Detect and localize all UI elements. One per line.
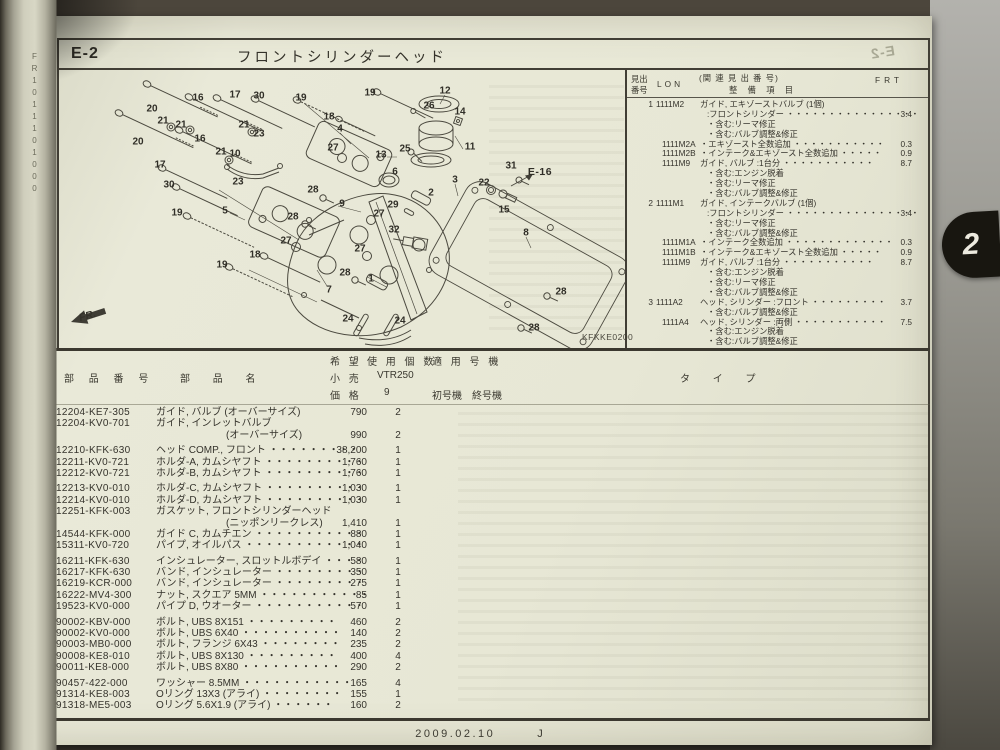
footer-mark: J: [537, 728, 543, 740]
callout-25: 25: [399, 144, 410, 155]
svc-col-item: 整 備 項 目: [729, 84, 797, 96]
page-title: フロントシリンダーヘッド: [59, 46, 625, 67]
callout-22: 22: [478, 178, 489, 189]
callout-5: 5: [222, 206, 228, 217]
callout-1: 1: [368, 274, 374, 285]
callout-18: 18: [323, 112, 334, 123]
callout-10: 10: [229, 149, 240, 160]
svc-col-lon: LON: [657, 79, 683, 89]
callout-2: 2: [428, 188, 434, 199]
main-frame: E-2 フロントシリンダーヘッド: [57, 38, 930, 350]
callout-27: 27: [373, 209, 384, 220]
parts-rows: 112204-KE7-305ガイド, バルブ (オーバーサイズ)79022122…: [28, 407, 930, 712]
photo-of-parts-catalog: E-2 E-2 フロントシリンダーヘッド: [0, 0, 1000, 750]
parts-row: 2291314-KE8-003Oリング 13X3 (アライ) ・・・・・・・・1…: [28, 689, 930, 700]
callout-20: 20: [146, 104, 157, 115]
callout-21: 21: [215, 147, 226, 158]
parts-row: 1015311-KV0-720パイプ, オイルパス ・・・・・・・・・・・・1,…: [28, 540, 930, 551]
callout-E-16: E-16: [528, 166, 552, 178]
callout-7: 7: [326, 285, 332, 296]
callout-32: 32: [388, 225, 399, 236]
col-part-number: 部 品 番 号: [64, 370, 154, 385]
callout-30: 30: [163, 180, 174, 191]
service-panel: 見出 番号 LON (関 連 見 出 番 号) 整 備 項 目 FRT 1111…: [625, 70, 928, 348]
parts-row: 512212-KV0-721ホルダ-B, カムシヤフト ・・・・・・・・・・1,…: [28, 468, 930, 479]
page-header: E-2 フロントシリンダーヘッド: [59, 40, 928, 70]
parts-row: 1990008-KE8-010ボルト, UBS 8X130 ・・・・・・・・・4…: [28, 651, 930, 662]
parts-row: 612213-KV0-010ホルダ-C, カムシヤフト ・・・・・・・・・・1,…: [28, 483, 930, 494]
callout-27: 27: [327, 143, 338, 154]
callout-12: 12: [439, 86, 450, 97]
callout-28: 28: [528, 323, 539, 334]
col-quantity: 使 用 個 数: [367, 353, 436, 368]
parts-row: 1790002-KV0-000ボルト, UBS 6X40 ・・・・・・・・・・1…: [28, 628, 930, 639]
callout-19: 19: [364, 88, 375, 99]
callout-21: 21: [157, 116, 168, 127]
callout-14: 14: [454, 107, 465, 118]
parts-row: 914544-KFK-000ガイド C, カムチエン ・・・・・・・・・・・88…: [28, 529, 930, 540]
callout-19: 19: [216, 260, 227, 271]
footer-date: 2009.02.10: [415, 728, 495, 740]
col-part-name: 部 品 名: [180, 370, 266, 385]
service-row: :フロントシリンダー ・・・・・・・・・・・・・・・・3.4: [627, 110, 928, 120]
callout-21: 21: [175, 120, 186, 131]
book-spine: FR1011101000: [0, 0, 57, 750]
callout-23: 23: [253, 129, 264, 140]
col-first-serial: 初号機: [432, 387, 462, 402]
parts-row: 2090011-KE8-000ボルト, UBS 8X80 ・・・・・・・・・・2…: [28, 662, 930, 673]
parts-row: 312210-KFK-630ヘッド COMP., フロント ・・・・・・・・・3…: [28, 445, 930, 456]
callout-28: 28: [307, 185, 318, 196]
callout-27: 27: [280, 236, 291, 247]
parts-row: 1316219-KCR-000バンド, インシュレーター ・・・・・・・・・27…: [28, 578, 930, 589]
col-applicable-model: 適 用 号 機: [432, 353, 501, 368]
callout-23: 23: [232, 177, 243, 188]
callout-3: 3: [452, 175, 458, 186]
callout-17: 17: [154, 160, 165, 171]
desk-surface: [930, 0, 1000, 750]
model-year-code: 9: [384, 387, 390, 398]
callout-15: 15: [498, 205, 509, 216]
callout-24: 24: [342, 314, 353, 325]
callout-16: 16: [192, 93, 203, 104]
col-type: タ イ プ: [680, 370, 766, 385]
service-row: ・含む:エンジン脱着: [627, 169, 928, 179]
parts-row: 112204-KE7-305ガイド, バルブ (オーバーサイズ)7902: [28, 407, 930, 418]
parts-row: 1519523-KV0-000パイプ D, ウオーター ・・・・・・・・・・・5…: [28, 601, 930, 612]
parts-row: 1416222-MV4-300ナット, スクエア 5MM ・・・・・・・・・・・…: [28, 590, 930, 601]
model-name: VTR250: [377, 370, 414, 381]
callout-28: 28: [287, 212, 298, 223]
callout-28: 28: [555, 287, 566, 298]
parts-row: 812251-KFK-003ガスケット, フロントシリンダーヘッド: [28, 506, 930, 517]
parts-table: 見出 番号 部 品 番 号 部 品 名 希 望 小 売 価 格 使 用 個 数 …: [28, 351, 930, 718]
service-row: :フロントシリンダー ・・・・・・・・・・・・・・・・3.4: [627, 209, 928, 219]
callout-29: 29: [387, 200, 398, 211]
parts-row: 212204-KV0-701ガイド, インレットバルブ: [28, 418, 930, 429]
page-footer: 2009.02.10J: [14, 728, 944, 740]
parts-row: (オーバーサイズ)9902: [28, 430, 930, 441]
callout-18: 18: [249, 250, 260, 261]
parts-row: 712214-KV0-010ホルダ-D, カムシヤフト ・・・・・・・・・・1,…: [28, 495, 930, 506]
callout-30: 30: [253, 91, 264, 102]
diagram-callouts: 2016173019191842121212320162110271723283…: [59, 70, 627, 348]
col-last-serial: 終号機: [472, 387, 502, 402]
callout-17: 17: [229, 90, 240, 101]
divider-heavy-bottom: [28, 718, 930, 721]
spine-text: FR1011101000: [30, 52, 39, 196]
callout-31: 31: [505, 161, 516, 172]
callout-21: 21: [238, 120, 249, 131]
callout-11: 11: [465, 142, 476, 153]
svc-col-frt: FRT: [875, 75, 903, 85]
parts-row: 2190457-422-000ワッシャー 8.5MM ・・・・・・・・・・・16…: [28, 678, 930, 689]
service-header: 見出 番号 LON (関 連 見 出 番 号) 整 備 項 目 FRT: [627, 70, 928, 98]
callout-9: 9: [339, 199, 345, 210]
callout-28: 28: [339, 268, 350, 279]
service-row: ・含む:エンジン脱着: [627, 268, 928, 278]
col-price: 希 望: [330, 353, 362, 368]
callout-16: 16: [194, 134, 205, 145]
parts-row: 2391318-ME5-003Oリング 5.6X1.9 (アライ) ・・・・・・…: [28, 700, 930, 711]
exploded-diagram: 2016173019191842121212320162110271723283…: [59, 70, 627, 348]
service-row: ・含む:バルブ調整&修正: [627, 337, 928, 347]
callout-13: 13: [375, 150, 386, 161]
tab-number: 2: [962, 228, 980, 263]
service-rows: 11111M2ガイド, エキゾーストバルブ (1個):フロントシリンダー ・・・…: [627, 100, 928, 347]
callout-8: 8: [523, 228, 529, 239]
parts-row: 1690002-KBV-000ボルト, UBS 8X151 ・・・・・・・・・4…: [28, 617, 930, 628]
parts-row: 412211-KV0-721ホルダ-A, カムシヤフト ・・・・・・・・・・1,…: [28, 457, 930, 468]
callout-6: 6: [392, 167, 398, 178]
parts-row: (ニッポンリークレス)1,4101: [28, 518, 930, 529]
callout-24: 24: [394, 316, 405, 327]
callout-20: 20: [132, 137, 143, 148]
callout-4: 4: [337, 124, 343, 135]
parts-row: 1216217-KFK-630バンド, インシュレーター ・・・・・・・・・35…: [28, 567, 930, 578]
callout-19: 19: [171, 208, 182, 219]
callout-27: 27: [354, 244, 365, 255]
catalog-page: E-2 E-2 フロントシリンダーヘッド: [14, 16, 932, 745]
parts-row: 1890003-MB0-000ボルト, フランジ 6X43 ・・・・・・・・23…: [28, 639, 930, 650]
callout-19: 19: [295, 93, 306, 104]
svc-col-related: (関 連 見 出 番 号): [699, 72, 779, 84]
parts-row: 1116211-KFK-630インシュレーター, スロットルボデイ ・・・・58…: [28, 556, 930, 567]
parts-header: 見出 番号 部 品 番 号 部 品 名 希 望 小 売 価 格 使 用 個 数 …: [28, 351, 930, 403]
callout-26: 26: [423, 101, 434, 112]
header-underline: [28, 404, 930, 405]
